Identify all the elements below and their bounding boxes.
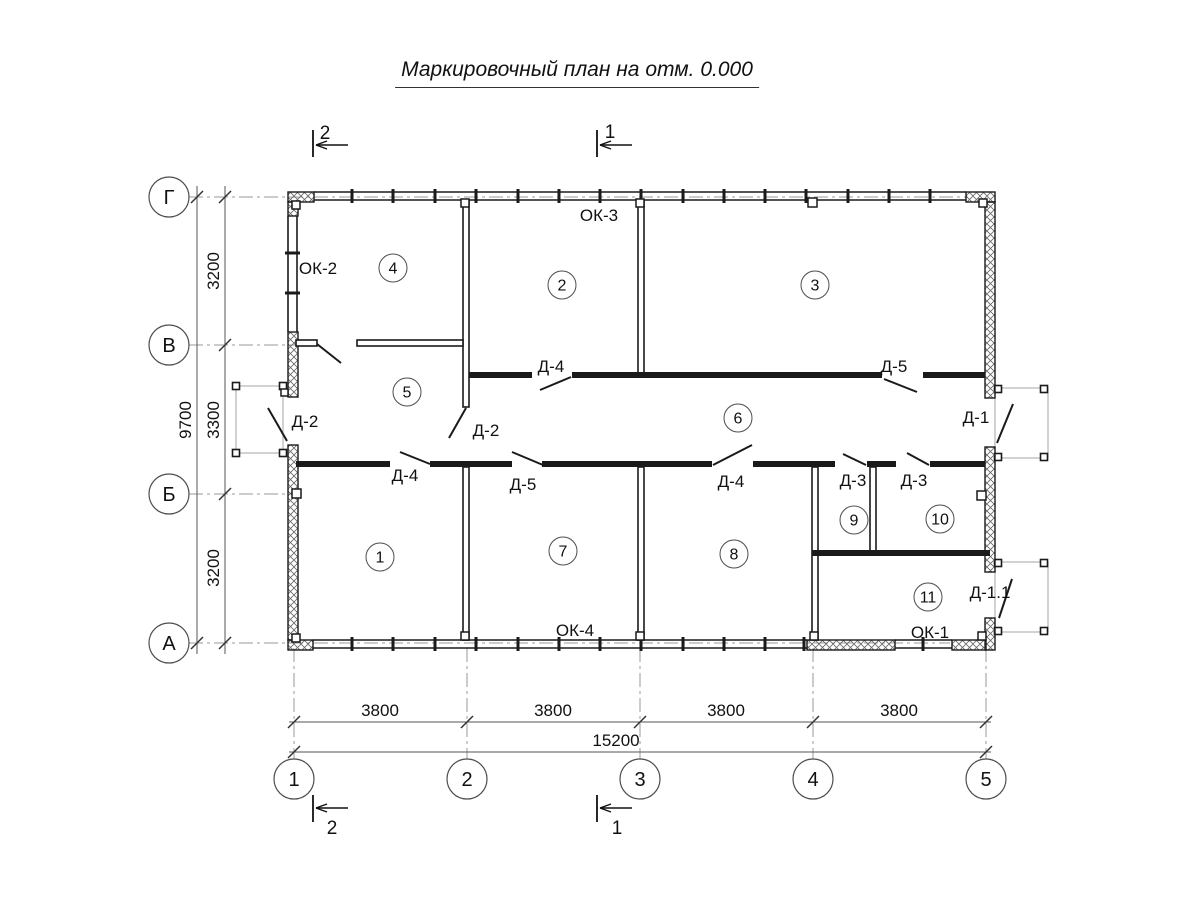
door-label: Д-5	[881, 357, 908, 376]
wall-pier	[292, 489, 301, 498]
wall-partition	[357, 340, 463, 346]
porch-post	[233, 450, 240, 457]
wall-hatched	[288, 445, 298, 640]
door-leaf	[317, 344, 341, 363]
wall-pier	[292, 634, 300, 642]
door-label: Д-5	[510, 475, 537, 494]
wall-hatched	[952, 640, 986, 650]
room-number: 11	[920, 590, 937, 607]
porch-outline	[236, 386, 283, 453]
door-leaf	[512, 452, 543, 465]
door-leaf	[843, 454, 866, 465]
door-leaf	[400, 452, 430, 464]
wall-pier	[636, 199, 644, 207]
door-leaf	[907, 453, 929, 465]
door-label: Д-2	[292, 412, 319, 431]
drawing-sheet: Маркировочный план на отм. 0.000 3200330…	[0, 0, 1200, 900]
porch-post	[1041, 628, 1048, 635]
wall	[753, 461, 835, 467]
wall-partition	[296, 340, 317, 346]
door-label: Д-1	[963, 408, 990, 427]
wall-pier	[977, 491, 986, 500]
axis-label-col: 3	[634, 769, 645, 791]
axis-label-row: А	[162, 633, 176, 655]
wall	[572, 372, 882, 378]
dim-text-bottom: 3800	[880, 701, 918, 720]
wall	[469, 372, 532, 378]
wall-pier	[281, 389, 288, 396]
wall-partition	[638, 467, 644, 640]
wall-pier	[461, 632, 469, 640]
wall	[867, 461, 896, 467]
door-label: Д-2	[473, 421, 500, 440]
wall-partition	[870, 467, 876, 553]
wall-partition	[463, 200, 469, 407]
porch-post	[233, 383, 240, 390]
wall-pier	[636, 632, 644, 640]
room-number: 5	[403, 385, 412, 402]
axis-label-row: Б	[162, 484, 175, 506]
wall	[430, 461, 512, 467]
wall-partition	[463, 467, 469, 640]
section-number: 2	[327, 818, 338, 839]
window-label: ОК-4	[556, 621, 594, 640]
axis-label-col: 5	[980, 769, 991, 791]
window-label: ОК-3	[580, 206, 618, 225]
door-leaf	[713, 445, 752, 465]
wall	[930, 461, 985, 467]
wall-pier	[808, 198, 817, 207]
plan-title: Маркировочный план на отм. 0.000	[395, 58, 759, 88]
room-number: 10	[931, 512, 949, 529]
wall-pier	[979, 199, 987, 207]
room-number: 4	[389, 261, 398, 278]
wall	[542, 461, 712, 467]
room-number: 1	[376, 550, 385, 567]
door-leaf	[540, 377, 571, 390]
porch-post	[1041, 386, 1048, 393]
axis-label-row: Г	[164, 187, 175, 209]
dim-text-bottom: 3800	[707, 701, 745, 720]
axis-label-col: 1	[288, 769, 299, 791]
dim-text-left: 3200	[204, 549, 223, 587]
door-leaf	[997, 404, 1013, 443]
room-number: 8	[730, 547, 739, 564]
section-number: 2	[320, 123, 331, 144]
dim-text-bottom: 3800	[534, 701, 572, 720]
door-label: Д-3	[901, 471, 928, 490]
door-label: Д-4	[718, 472, 745, 491]
wall-partition	[638, 200, 644, 375]
floor-plan-svg: 3200330032009700380038003800380015200123…	[0, 0, 1200, 900]
room-number: 3	[811, 278, 820, 295]
window-label: ОК-2	[299, 259, 337, 278]
door-leaf	[884, 379, 917, 392]
room-number: 2	[558, 278, 567, 295]
wall-pier	[810, 632, 818, 640]
dim-text-left: 3200	[204, 252, 223, 290]
section-number: 1	[605, 122, 616, 143]
axis-label-col: 2	[461, 769, 472, 791]
dim-text-left: 3300	[204, 401, 223, 439]
door-leaf	[268, 408, 287, 441]
door-label: Д-4	[392, 466, 419, 485]
section-number: 1	[612, 818, 623, 839]
door-label: Д-3	[840, 471, 867, 490]
door-label: Д-1.1	[970, 583, 1011, 602]
wall-pier	[292, 201, 300, 209]
room-number: 6	[734, 411, 743, 428]
axis-label-col: 4	[807, 769, 818, 791]
room-number: 7	[559, 544, 568, 561]
window-label: ОК-1	[911, 623, 949, 642]
door-leaf	[449, 408, 466, 438]
wall	[923, 372, 985, 378]
wall-pier	[461, 199, 469, 207]
wall	[812, 550, 990, 556]
room-number: 9	[850, 513, 859, 530]
porch-post	[1041, 454, 1048, 461]
dim-text-left-total: 9700	[176, 401, 195, 439]
dim-text-bottom-total: 15200	[592, 731, 639, 750]
porch-outline	[995, 388, 1048, 458]
wall-hatched	[807, 640, 895, 650]
porch-post	[1041, 560, 1048, 567]
door-label: Д-4	[538, 357, 565, 376]
porch-post	[280, 450, 287, 457]
wall	[296, 461, 390, 467]
dim-text-bottom: 3800	[361, 701, 399, 720]
wall-pier	[978, 632, 986, 640]
wall-hatched	[985, 202, 995, 398]
axis-label-row: В	[162, 335, 175, 357]
